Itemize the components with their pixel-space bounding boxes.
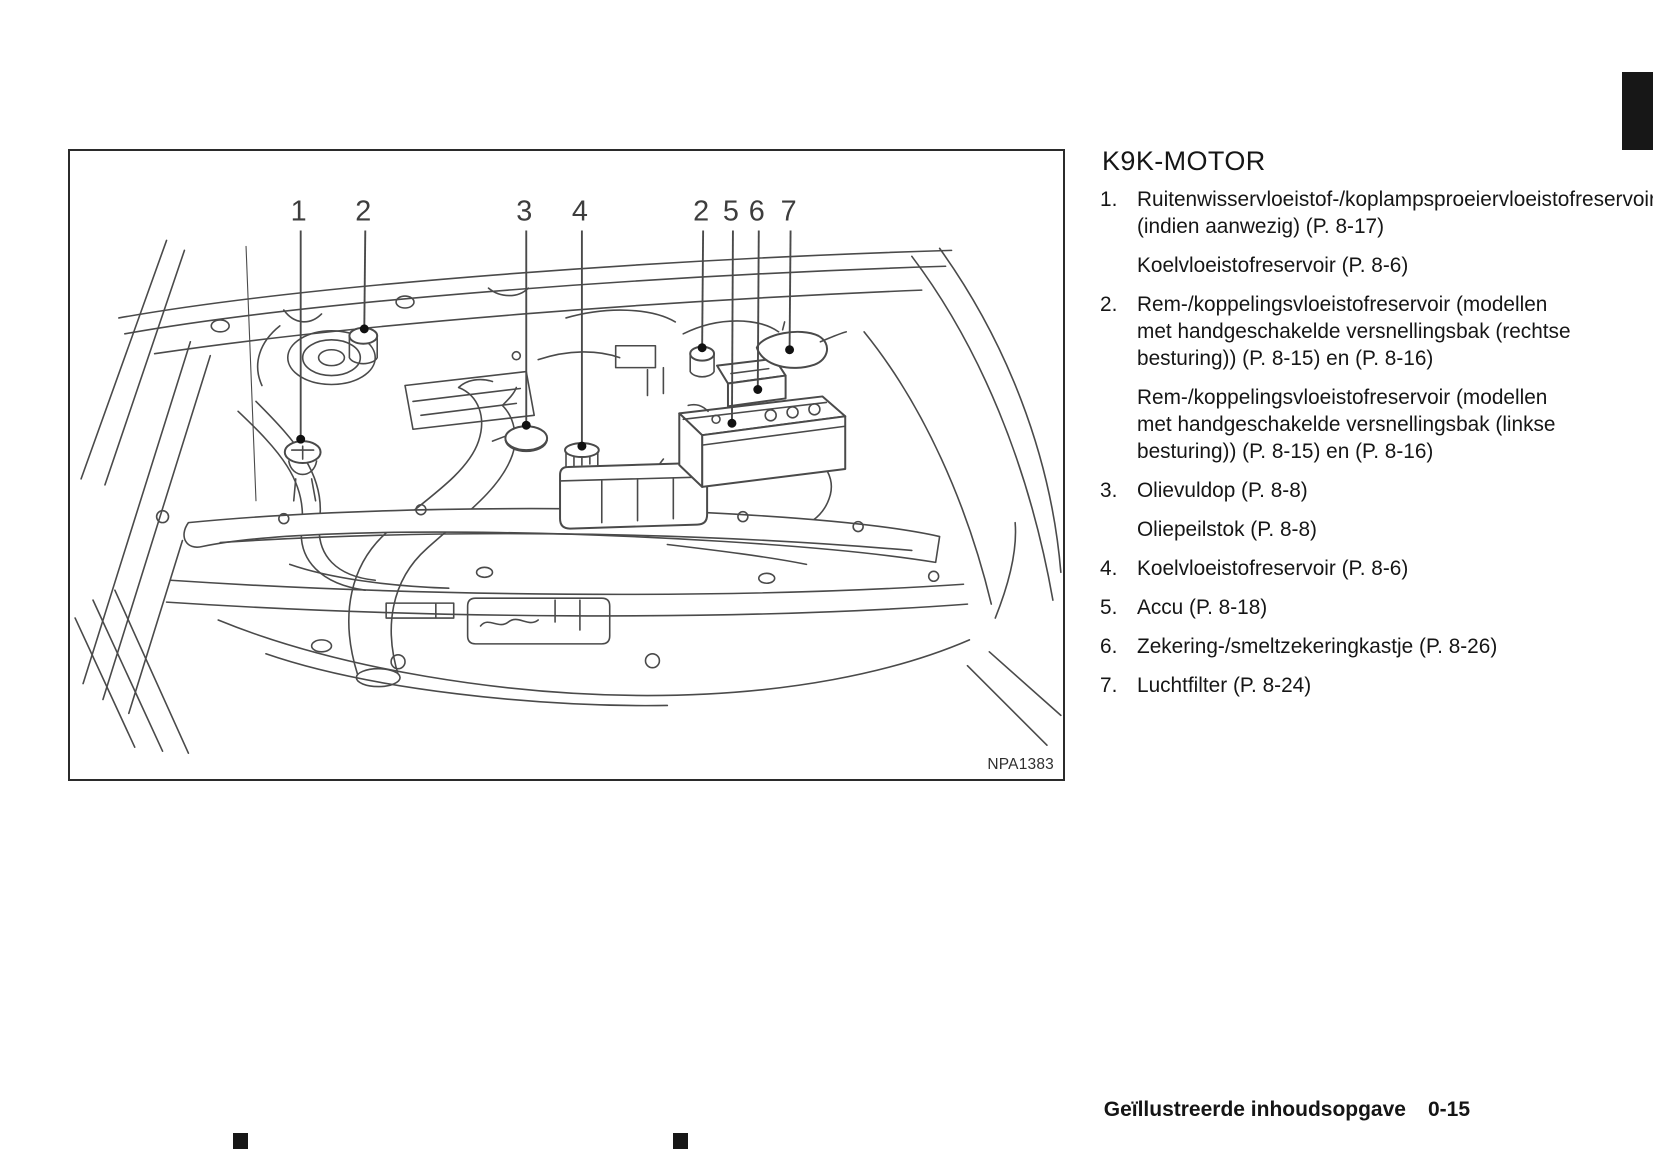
legend-item-number: 5. [1100, 594, 1137, 621]
callout-leader-line [758, 230, 759, 389]
legend-panel: K9K-MOTOR 1.Ruitenwisservloeistof-/kopla… [1100, 146, 1587, 711]
legend-item-number: 7. [1100, 672, 1137, 699]
legend-paragraph: Rem-/koppelingsvloeistofreservoir (model… [1137, 291, 1587, 372]
legend-item-number: 2. [1100, 291, 1137, 318]
callout-target-dot [522, 421, 531, 430]
engine-bay-illustration: 12342567 [70, 151, 1063, 779]
legend-paragraph: Accu (P. 8-18) [1137, 594, 1587, 621]
legend-item-number: 4. [1100, 555, 1137, 582]
legend-item: 3.Olievuldop (P. 8-8)Oliepeilstok (P. 8-… [1100, 477, 1587, 555]
legend-item-text: Zekering-/smeltzekeringkastje (P. 8-26) [1137, 633, 1587, 672]
legend-paragraph: Oliepeilstok (P. 8-8) [1137, 516, 1587, 543]
callout-target-dot [727, 419, 736, 428]
manual-page: { "colors": { "ink": "#1c1c1c", "line_ar… [0, 0, 1653, 1149]
callout-leader-line [790, 230, 791, 349]
legend-paragraph: Koelvloeistofreservoir (P. 8-6) [1137, 252, 1587, 279]
callout-target-dot [577, 442, 586, 451]
callout-leader-line [702, 230, 703, 347]
legend-paragraph: Olievuldop (P. 8-8) [1137, 477, 1587, 504]
legend-item-number: 3. [1100, 477, 1137, 504]
page-footer: Geïllustreerde inhoudsopgave 0-15 [1104, 1098, 1470, 1122]
legend-item-text: Rem-/koppelingsvloeistofreservoir (model… [1137, 291, 1587, 477]
legend-item-text: Koelvloeistofreservoir (P. 8-6) [1137, 555, 1587, 594]
engine-figure-box: 12342567 NPA1383 [68, 149, 1065, 781]
callout-number: 1 [291, 196, 307, 228]
legend-item-text: Luchtfilter (P. 8-24) [1137, 672, 1587, 711]
callout-leader-line [732, 230, 733, 423]
legend-item: 4.Koelvloeistofreservoir (P. 8-6) [1100, 555, 1587, 594]
legend-item: 2.Rem-/koppelingsvloeistofreservoir (mod… [1100, 291, 1587, 477]
legend-item: 6.Zekering-/smeltzekeringkastje (P. 8-26… [1100, 633, 1587, 672]
legend-paragraph: Luchtfilter (P. 8-24) [1137, 672, 1587, 699]
footer-chapter-label: Geïllustreerde inhoudsopgave [1104, 1098, 1406, 1122]
chapter-edge-tab [1622, 72, 1653, 150]
legend-item-number: 1. [1100, 186, 1137, 213]
callout-target-dot [753, 385, 762, 394]
legend-paragraph: Rem-/koppelingsvloeistofreservoir (model… [1137, 384, 1587, 465]
section-title: K9K-MOTOR [1102, 146, 1587, 177]
legend-item-number: 6. [1100, 633, 1137, 660]
legend-item-text: Ruitenwisservloeistof-/koplampsproeiervl… [1137, 186, 1587, 291]
callout-number: 2 [355, 196, 371, 228]
callout-number: 4 [572, 196, 588, 228]
callout-leader-line [364, 230, 365, 328]
figure-code: NPA1383 [987, 756, 1054, 774]
legend-item-text: Accu (P. 8-18) [1137, 594, 1587, 633]
legend-item-text: Olievuldop (P. 8-8)Oliepeilstok (P. 8-8) [1137, 477, 1587, 555]
callout-number: 3 [516, 196, 532, 228]
registration-mark [673, 1133, 688, 1149]
callout-target-dot [360, 324, 369, 333]
legend-item: 1.Ruitenwisservloeistof-/koplampsproeier… [1100, 186, 1587, 291]
legend-item: 7.Luchtfilter (P. 8-24) [1100, 672, 1587, 711]
callout-target-dot [785, 345, 794, 354]
registration-mark [233, 1133, 248, 1149]
callout-number: 2 [693, 196, 709, 228]
legend-items: 1.Ruitenwisservloeistof-/koplampsproeier… [1100, 186, 1587, 711]
legend-paragraph: Ruitenwisservloeistof-/koplampsproeiervl… [1137, 186, 1587, 240]
footer-page-number: 0-15 [1428, 1098, 1470, 1122]
callout-number: 6 [749, 196, 765, 228]
legend-paragraph: Koelvloeistofreservoir (P. 8-6) [1137, 555, 1587, 582]
legend-item: 5.Accu (P. 8-18) [1100, 594, 1587, 633]
callout-target-dot [698, 343, 707, 352]
legend-paragraph: Zekering-/smeltzekeringkastje (P. 8-26) [1137, 633, 1587, 660]
callout-target-dot [296, 435, 305, 444]
callout-number: 7 [781, 196, 797, 228]
callout-number: 5 [723, 196, 739, 228]
